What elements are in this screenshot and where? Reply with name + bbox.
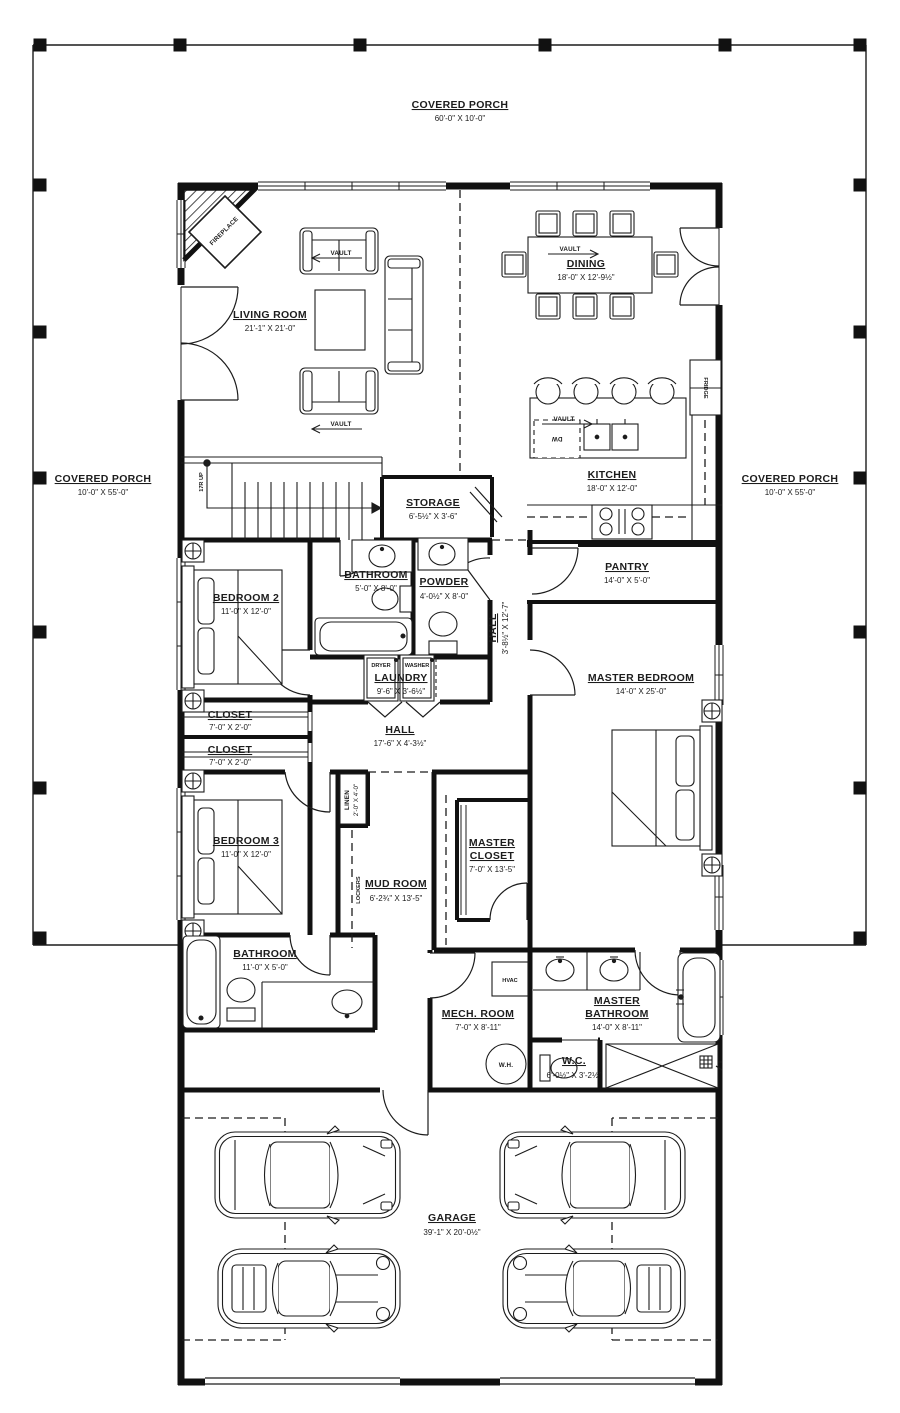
closet2-label: CLOSET — [208, 744, 253, 756]
kitchen-label: KITCHEN — [588, 469, 637, 481]
bedroom3-dims: 11'-0" X 12'-0" — [221, 850, 271, 859]
dining-label: DINING — [567, 258, 606, 270]
washer-label: WASHER — [405, 663, 430, 669]
bathroom-hall-label: BATHROOM — [344, 569, 407, 581]
bathroom-hall-dims: 5'-0" X 8'-0" — [355, 584, 397, 593]
hvac-label: HVAC — [502, 978, 517, 984]
vault-living-bottom: VAULT — [312, 421, 362, 433]
porch-top-label: COVERED PORCH — [412, 99, 509, 111]
linen-dims: 2'-0" X 4'-0" — [353, 784, 360, 816]
porch-boundary — [33, 45, 866, 945]
porch-left-label: COVERED PORCH — [55, 473, 152, 485]
dryer-label: DRYER — [371, 663, 390, 669]
garage-dims: 39'-1" X 20'-0½" — [423, 1228, 480, 1237]
svg-text:VAULT: VAULT — [330, 421, 351, 428]
stairs-label: 17R UP — [199, 472, 205, 492]
hall-vertical-dims: 3'-8½" X 12'-7" — [501, 601, 510, 654]
living-room-dims: 21'-1" X 21'-0" — [245, 324, 296, 333]
closet2-dims: 7'-0" X 2'-0" — [209, 758, 251, 767]
hall-vertical-label: HALL — [487, 613, 499, 642]
hall-dims: 17'-6" X 4'-3½" — [374, 739, 427, 748]
living-room-label: LIVING ROOM — [233, 309, 307, 321]
bedroom3-label: BEDROOM 3 — [213, 835, 279, 847]
powder-label: POWDER — [419, 576, 468, 588]
bathroom3-dims: 11'-0" X 5'-0" — [242, 963, 288, 972]
storage-label: STORAGE — [406, 497, 460, 509]
bathroom3-label: BATHROOM — [233, 948, 296, 960]
pantry-label: PANTRY — [605, 561, 649, 573]
porch-top-dims: 60'-0" X 10'-0" — [435, 114, 486, 123]
bedroom2-bed — [182, 540, 282, 712]
stairs — [181, 457, 382, 540]
fridge-label: FRIDGE — [702, 377, 708, 398]
storage-dims: 6'-5½" X 3'-6" — [409, 512, 457, 521]
hall-label: HALL — [385, 724, 414, 736]
floor-plan-svg: COVERED PORCH 60'-0" X 10'-0" COVERED PO… — [0, 0, 900, 1413]
porch-left-dims: 10'-0" X 55'-0" — [78, 488, 129, 497]
master-closet-label1: MASTER — [469, 837, 515, 849]
lockers-label: LOCKERS — [356, 876, 362, 904]
porch-right-dims: 10'-0" X 55'-0" — [765, 488, 816, 497]
closet1-dims: 7'-0" X 2'-0" — [209, 723, 251, 732]
door-swings — [181, 228, 900, 1135]
porch-right-label: COVERED PORCH — [742, 473, 839, 485]
bedroom2-dims: 11'-0" X 12'-0" — [221, 607, 271, 616]
master-closet-label2: CLOSET — [470, 850, 515, 862]
dishwasher-label: DW — [552, 435, 563, 442]
mech-room-label: MECH. ROOM — [442, 1008, 514, 1020]
mud-room-dims: 6'-2¾" X 13'-5" — [370, 894, 423, 903]
mech-room-dims: 7'-0" X 8'-11" — [455, 1023, 501, 1032]
svg-text:VAULT: VAULT — [330, 250, 351, 257]
laundry-label: LAUNDRY — [374, 672, 427, 684]
linen-label: LINEN — [344, 790, 351, 810]
floor-plan-canvas: COVERED PORCH 60'-0" X 10'-0" COVERED PO… — [0, 0, 900, 1413]
master-bedroom-label: MASTER BEDROOM — [588, 672, 694, 684]
dining-dims: 18'-0" X 12'-9½" — [557, 273, 614, 282]
kitchen-dims: 18'-0" X 12'-0" — [587, 484, 638, 493]
master-closet-dims: 7'-0" X 13'-5" — [469, 865, 515, 874]
porch-columns — [34, 39, 867, 945]
water-heater-label: W.H. — [499, 1062, 513, 1069]
wc-dims: 6'-0½" X 3'-2½" — [547, 1071, 602, 1080]
master-bed — [612, 700, 722, 876]
pantry-dims: 14'-0" X 5'-0" — [604, 576, 650, 585]
mud-room-label: MUD ROOM — [365, 878, 427, 890]
wc-label: W.C. — [562, 1055, 586, 1067]
powder-dims: 4'-0½" X 8'-0" — [420, 592, 468, 601]
master-bathroom-label2: BATHROOM — [585, 1008, 648, 1020]
garage-label: GARAGE — [428, 1212, 476, 1224]
master-bathroom-label1: MASTER — [594, 995, 640, 1007]
living-furniture — [300, 228, 423, 414]
kitchen-fixtures — [527, 360, 722, 540]
master-bath-fixtures — [533, 952, 722, 1088]
svg-text:VAULT: VAULT — [559, 246, 580, 253]
bedroom2-label: BEDROOM 2 — [213, 592, 279, 604]
master-bathroom-dims: 14'-0" X 8'-11" — [592, 1023, 642, 1032]
svg-text:VAULT: VAULT — [553, 416, 574, 423]
laundry-dims: 9'-6" X 3'-6½" — [377, 687, 425, 696]
closet1-label: CLOSET — [208, 709, 253, 721]
master-bedroom-dims: 14'-0" X 25'-0" — [616, 687, 667, 696]
